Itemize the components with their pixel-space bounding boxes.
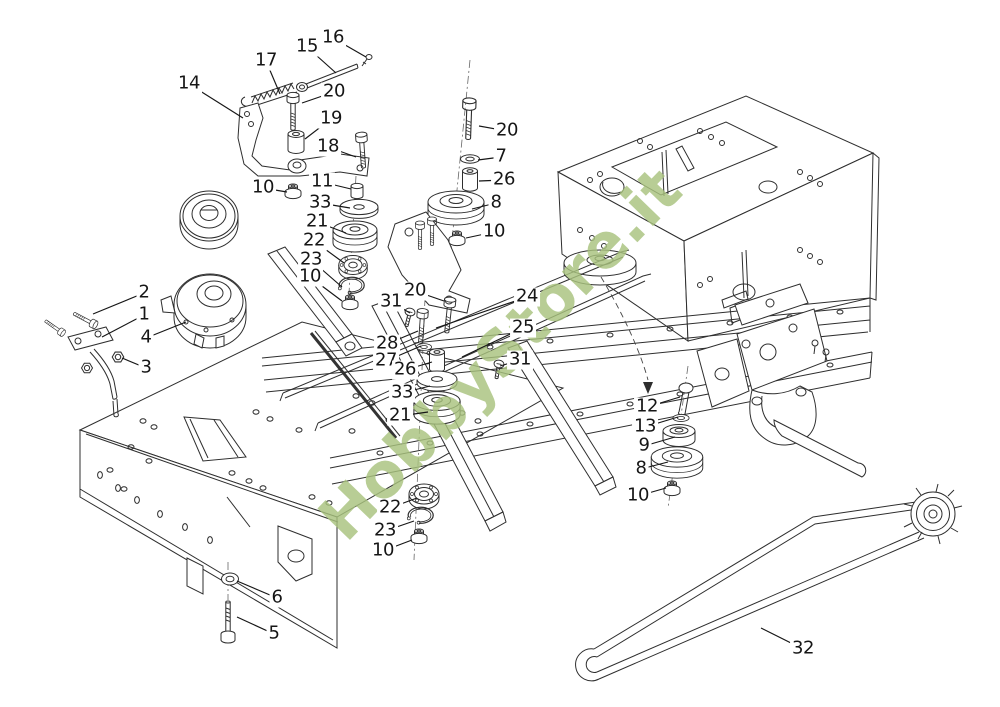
part-callout-19: 19 [318,110,344,129]
part-callout-10: 10 [297,268,323,287]
part-callout-2: 2 [137,284,152,303]
part-callout-26: 26 [491,171,517,190]
part-callout-3: 3 [139,359,154,378]
part-callout-31: 31 [507,351,533,370]
part-callout-12: 12 [634,398,660,417]
part-callout-10: 10 [250,179,276,198]
part-callout-9: 9 [637,437,652,456]
idler-rod-bracket [43,310,124,417]
part-callout-20: 20 [494,122,520,141]
part-callout-25: 25 [510,319,536,338]
part-callout-20: 20 [321,83,347,102]
part-callout-5: 5 [267,625,282,644]
double-pulley [180,191,238,249]
part-callout-10: 10 [625,487,651,506]
part-callout-10: 10 [481,223,507,242]
electromagnetic-clutch [161,274,246,348]
part-callout-22: 22 [377,499,403,518]
diagram-canvas: HobbyStore.it 16151714201918101133212223… [0,0,1000,707]
part-callout-8: 8 [489,194,504,213]
parts-diagram-art: HobbyStore.it [0,0,1000,707]
part-callout-21: 21 [387,407,413,426]
part-callout-18: 18 [315,138,341,157]
part-callout-32: 32 [790,640,816,659]
part-callout-11: 11 [309,173,335,192]
part-callout-8: 8 [634,460,649,479]
part-callout-26: 26 [392,361,418,380]
part-callout-16: 16 [320,29,346,48]
part-callout-24: 24 [514,288,540,307]
part-callout-17: 17 [253,52,279,71]
part-callout-33: 33 [389,384,415,403]
part-callout-20: 20 [402,282,428,301]
part-callout-23: 23 [372,522,398,541]
drive-belt [576,502,924,681]
part-callout-7: 7 [494,148,509,167]
part-callout-10: 10 [370,542,396,561]
part-callout-15: 15 [294,38,320,57]
part-callout-14: 14 [176,75,202,94]
part-callout-1: 1 [137,306,152,325]
part-callout-4: 4 [139,329,154,348]
part-callout-31: 31 [378,293,404,312]
idler-pulley-stack-top [333,176,378,310]
part-callout-6: 6 [270,589,285,608]
